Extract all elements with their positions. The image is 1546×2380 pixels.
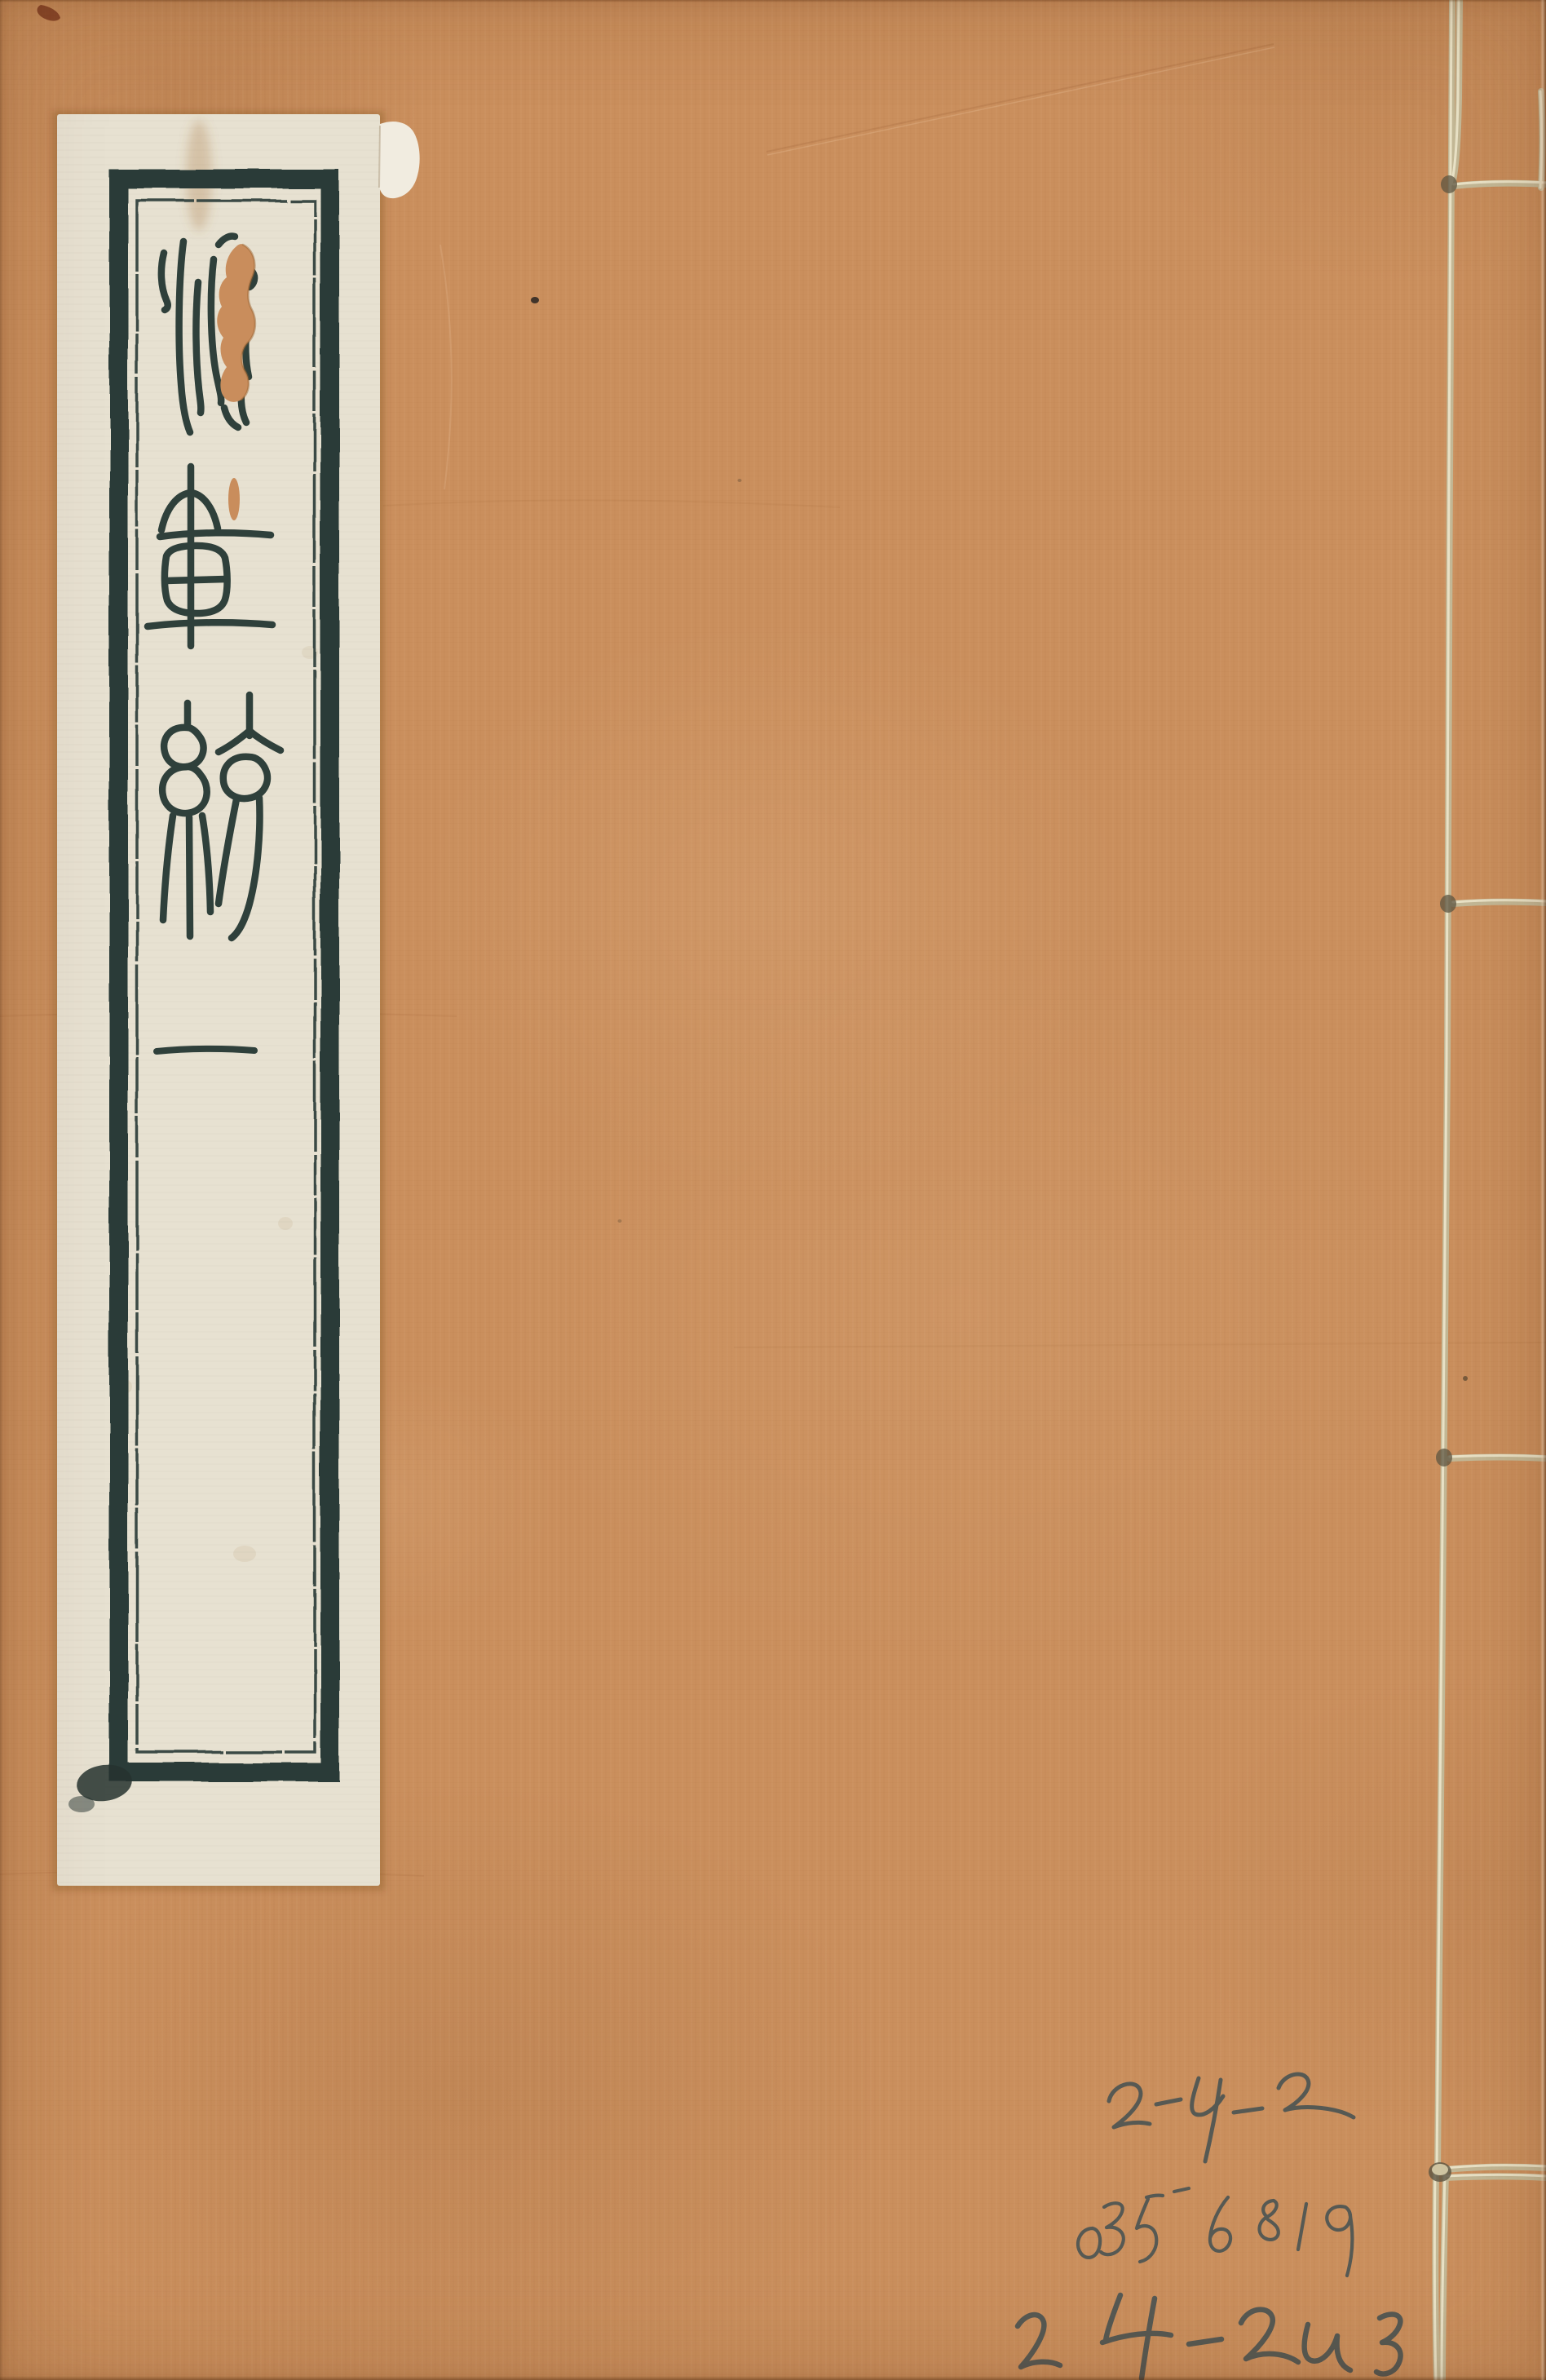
volume-marker-stroke (157, 1049, 254, 1051)
stitch-hole-2 (1440, 895, 1456, 913)
cover-artwork (0, 0, 1546, 2380)
ink-speck (618, 1219, 622, 1223)
ink-speck (1463, 1376, 1468, 1381)
torn-label-flap (379, 122, 420, 198)
pencil-line-2 (1078, 2188, 1352, 2276)
scanned-book-cover-page: { "page": { "description": "Scanned fron… (0, 0, 1546, 2380)
red-corner-mark (38, 5, 61, 21)
thread-base (1435, 0, 1546, 2380)
pencil-line-1 (1109, 2074, 1354, 2161)
book-cover-scan: seal script (zhuanshu), written vertical… (0, 0, 1546, 2380)
pencil-line-3 (1018, 2295, 1401, 2378)
pencil-annotations (1018, 2074, 1401, 2378)
title-label (52, 111, 420, 1891)
binding-threads (1429, 0, 1546, 2380)
ink-speck (738, 479, 742, 482)
flap-crease (379, 126, 380, 188)
frame-corner-ink-smear (68, 1796, 95, 1812)
ink-speck (531, 297, 539, 303)
stitch-hole-1 (1441, 175, 1457, 193)
stitch-knot-thread (1432, 2164, 1448, 2175)
stitch-hole-3 (1436, 1449, 1452, 1466)
